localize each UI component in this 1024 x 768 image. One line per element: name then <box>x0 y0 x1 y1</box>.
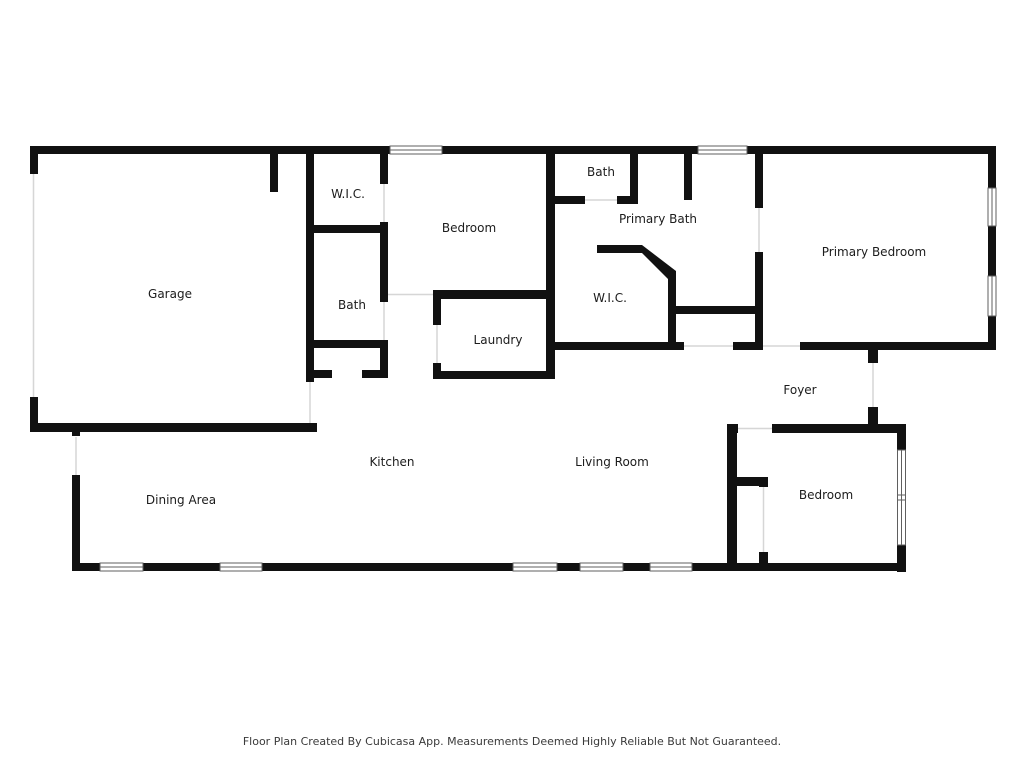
floor-plan-canvas: Garage W.I.C. Bath Bedroom Laundry Bath … <box>0 0 1024 768</box>
wall-segment <box>597 245 642 253</box>
window-double <box>898 450 906 545</box>
wall-segment <box>306 225 388 233</box>
wall-segment <box>270 146 278 192</box>
wall-segment <box>733 342 763 350</box>
room-labels: Garage W.I.C. Bath Bedroom Laundry Bath … <box>146 165 926 507</box>
wall-segment <box>772 424 906 433</box>
room-label-laundry: Laundry <box>474 333 523 347</box>
wall-segment <box>868 350 878 363</box>
wall-segment <box>380 222 388 302</box>
wall-segment <box>759 552 768 563</box>
wall-segment <box>380 348 388 372</box>
wall-segment <box>630 154 638 203</box>
wall-segment <box>72 475 80 569</box>
room-label-primary-bath: Primary Bath <box>619 212 697 226</box>
wall-segment <box>30 423 317 432</box>
room-label-bedroom-front: Bedroom <box>442 221 496 235</box>
window <box>513 563 557 571</box>
room-label-kitchen: Kitchen <box>369 455 414 469</box>
wall-segment <box>72 563 906 571</box>
wall-segment <box>617 196 638 204</box>
wall-segment <box>672 306 763 314</box>
wall-segment <box>362 370 388 378</box>
wall-segment <box>727 433 737 563</box>
room-label-primary-bedroom: Primary Bedroom <box>822 245 926 259</box>
window <box>220 563 262 571</box>
wall-segment <box>30 146 38 174</box>
wall-segment <box>546 146 555 379</box>
room-label-wic-hall: W.I.C. <box>331 187 365 201</box>
wall-segment <box>30 397 38 432</box>
room-label-living-room: Living Room <box>575 455 649 469</box>
wall-segment <box>306 340 388 348</box>
disclaimer-text: Floor Plan Created By Cubicasa App. Meas… <box>0 735 1024 748</box>
window <box>988 188 996 226</box>
wall-segment <box>555 342 684 350</box>
exterior-walls <box>30 146 996 572</box>
wall-segment <box>755 154 763 208</box>
wall-segment <box>433 371 555 379</box>
wall-segment <box>433 290 546 299</box>
room-label-dining-area: Dining Area <box>146 493 216 507</box>
wall-segment <box>800 342 996 350</box>
room-label-foyer: Foyer <box>783 383 816 397</box>
wall-segment <box>433 299 441 325</box>
room-label-bedroom-rear: Bedroom <box>799 488 853 502</box>
window <box>580 563 623 571</box>
window <box>698 146 747 154</box>
window <box>650 563 692 571</box>
wall-segment <box>555 196 585 204</box>
wall-segment <box>380 146 388 184</box>
window <box>988 276 996 316</box>
wall-segment <box>30 146 996 154</box>
window <box>100 563 143 571</box>
wall-segment <box>868 407 878 424</box>
wall-segment <box>755 252 763 350</box>
wall-segment <box>684 154 692 200</box>
interior-walls <box>270 146 768 563</box>
wall-segment <box>727 424 738 433</box>
wall-segment <box>759 477 768 487</box>
window <box>390 146 442 154</box>
room-label-bath-hall: Bath <box>338 298 366 312</box>
room-label-wic-primary: W.I.C. <box>593 291 627 305</box>
wall-segment <box>988 146 996 350</box>
room-label-garage: Garage <box>148 287 192 301</box>
room-label-bath-top: Bath <box>587 165 615 179</box>
wall-segment <box>306 370 332 378</box>
floor-plan: Garage W.I.C. Bath Bedroom Laundry Bath … <box>0 0 1024 768</box>
